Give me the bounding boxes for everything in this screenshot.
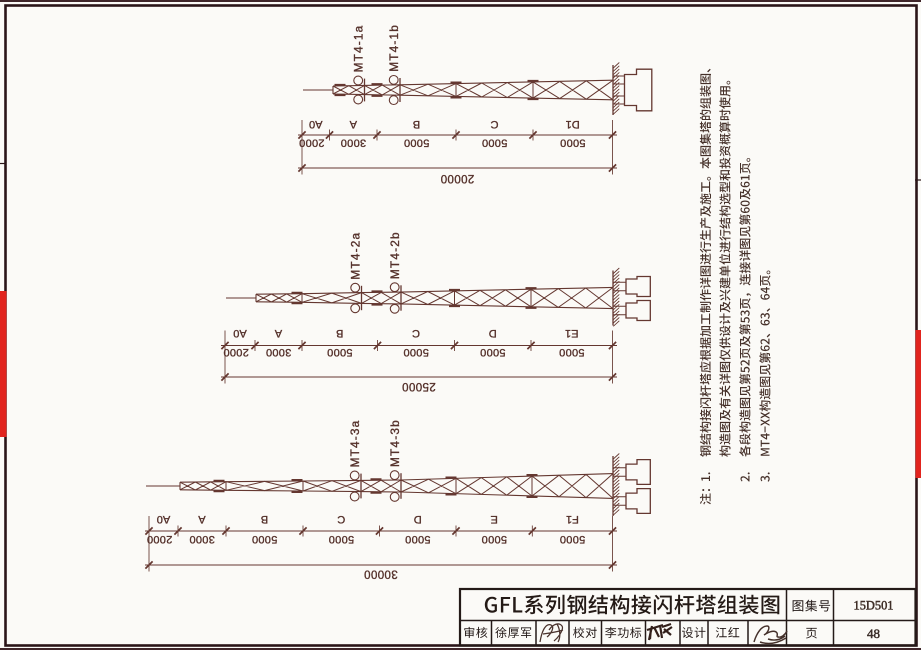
svg-text:5000: 5000	[482, 137, 508, 149]
svg-text:5000: 5000	[405, 533, 431, 545]
svg-text:A0: A0	[233, 327, 246, 339]
svg-text:5000: 5000	[559, 346, 585, 358]
svg-text:E: E	[491, 513, 498, 525]
svg-text:25000: 25000	[402, 380, 436, 392]
svg-text:C: C	[337, 513, 345, 525]
svg-text:A: A	[274, 327, 282, 339]
svg-text:D: D	[489, 327, 497, 339]
svg-text:5000: 5000	[480, 346, 506, 358]
svg-text:A0: A0	[157, 513, 170, 525]
svg-text:MT4-3a: MT4-3a	[348, 420, 362, 468]
svg-text:5000: 5000	[328, 533, 354, 545]
svg-text:D: D	[414, 513, 422, 525]
svg-text:5000: 5000	[481, 533, 507, 545]
svg-text:C: C	[412, 327, 420, 339]
svg-text:A: A	[349, 118, 357, 130]
svg-text:5000: 5000	[404, 137, 430, 149]
svg-text:5000: 5000	[560, 533, 586, 545]
svg-text:20000: 20000	[440, 172, 474, 184]
svg-text:2000: 2000	[223, 346, 249, 358]
svg-text:E1: E1	[565, 327, 578, 339]
svg-text:MT4-1a: MT4-1a	[352, 25, 366, 73]
svg-text:MT4-2a: MT4-2a	[349, 232, 363, 280]
svg-text:3000: 3000	[340, 137, 366, 149]
svg-text:3000: 3000	[189, 533, 215, 545]
svg-text:A: A	[198, 513, 206, 525]
svg-text:30000: 30000	[364, 568, 398, 580]
svg-text:5000: 5000	[560, 137, 586, 149]
svg-text:2000: 2000	[147, 533, 173, 545]
svg-text:MT4-2b: MT4-2b	[388, 231, 402, 279]
svg-text:5000: 5000	[403, 346, 429, 358]
svg-text:B: B	[413, 118, 420, 130]
svg-text:2000: 2000	[299, 137, 325, 149]
svg-text:15D501: 15D501	[854, 599, 894, 613]
svg-text:MT4-3b: MT4-3b	[388, 419, 402, 467]
svg-text:D1: D1	[566, 118, 580, 130]
svg-text:B: B	[261, 513, 268, 525]
svg-text:48: 48	[867, 626, 880, 641]
svg-text:B: B	[336, 327, 343, 339]
svg-text:F1: F1	[566, 513, 579, 525]
svg-text:3000: 3000	[266, 346, 292, 358]
svg-text:5000: 5000	[327, 346, 353, 358]
svg-text:A0: A0	[309, 118, 322, 130]
svg-text:C: C	[490, 118, 498, 130]
svg-text:MT4-1b: MT4-1b	[387, 24, 401, 72]
svg-text:5000: 5000	[252, 533, 278, 545]
